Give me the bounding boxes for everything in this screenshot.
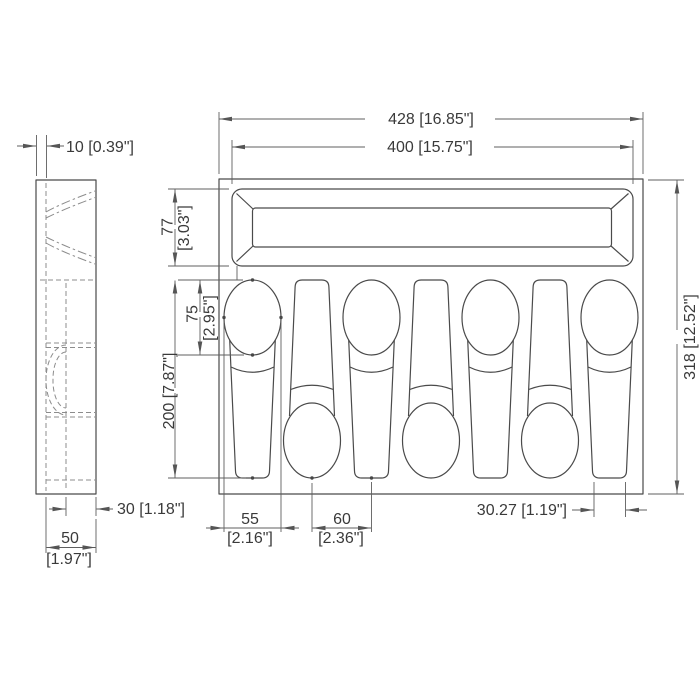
dim-label-overall-width: 428 [16.85"] xyxy=(388,111,474,128)
spoon-recess-4 xyxy=(403,280,460,478)
spoon-bowl xyxy=(403,403,460,478)
slot-profile-arc xyxy=(46,243,95,264)
dim-point xyxy=(251,278,254,281)
slot-corner-chamfer xyxy=(611,194,629,210)
spoon-neck-line xyxy=(231,367,274,372)
dim-label-handle-end-width: 30.27 [1.19"] xyxy=(477,502,567,519)
spoon-bowl xyxy=(284,403,341,478)
knife-slot xyxy=(232,189,633,266)
dim-label-side-width-mm: 50 xyxy=(61,530,79,547)
dim-label-spoon-pitch-inch: [2.36"] xyxy=(318,530,364,547)
dim-point xyxy=(251,353,254,356)
slot-profile-arc xyxy=(46,191,95,212)
dim-point xyxy=(279,316,282,319)
spoon-recess-6 xyxy=(522,280,579,478)
spoon-handle xyxy=(587,340,633,478)
dim-slot-height: 77 [3.03"] xyxy=(160,189,238,280)
side-view xyxy=(36,180,96,494)
dim-label-bowl-length-inch: [2.95"] xyxy=(202,295,219,341)
hidden-knife-slot-profile xyxy=(46,191,95,264)
dim-side-width: 50 [1.97"] xyxy=(46,497,96,568)
dim-point xyxy=(251,476,254,479)
hidden-bowl-profile-inner xyxy=(53,352,66,408)
slot-corner-chamfer xyxy=(237,194,254,210)
spoon-neck-line xyxy=(291,385,334,389)
dim-point xyxy=(370,476,373,479)
spoon-neck-line xyxy=(469,367,512,372)
spoon-neck-line xyxy=(588,367,631,372)
dim-label-slot-height-inch: [3.03"] xyxy=(176,205,193,251)
dim-label-recess-length: 200 [7.87"] xyxy=(161,353,178,430)
slot-corner-chamfer xyxy=(611,246,629,262)
main-view xyxy=(219,179,643,494)
spoon-neck-line xyxy=(410,385,453,389)
technical-drawing: 428 [16.85"] 400 [15.75"] 10 [0.39"] 77 … xyxy=(0,0,700,700)
spoon-bowl xyxy=(224,280,281,355)
spoon-bowl xyxy=(462,280,519,355)
dim-label-recess-depth: 30 [1.18"] xyxy=(117,501,185,518)
spoon-neck-line xyxy=(350,367,393,372)
spoon-bowl xyxy=(581,280,638,355)
spoon-recess-2 xyxy=(284,280,341,478)
knife-slot-floor xyxy=(253,208,612,247)
spoon-recess-7 xyxy=(581,280,638,478)
dim-point xyxy=(310,476,313,479)
dim-point xyxy=(222,316,225,319)
dim-wall-thickness: 10 [0.39"] xyxy=(17,135,134,178)
spoon-handle xyxy=(468,340,514,478)
spoon-bowl xyxy=(343,280,400,355)
spoon-neck-line xyxy=(529,385,572,389)
knife-slot-rim xyxy=(232,189,633,266)
dim-label-wall-thickness: 10 [0.39"] xyxy=(66,139,134,156)
spoon-recess-5 xyxy=(462,280,519,478)
dim-recess-depth: 30 [1.18"] xyxy=(49,497,185,518)
dim-slot-width: 400 [15.75"] xyxy=(232,139,633,184)
spoon-handle xyxy=(528,280,573,416)
spoon-bowl xyxy=(522,403,579,478)
hidden-bowl-profile-outer xyxy=(46,345,66,415)
spoon-recess-3 xyxy=(343,280,400,478)
dim-label-bowl-width-inch: [2.16"] xyxy=(227,530,273,547)
dim-label-slot-width: 400 [15.75"] xyxy=(387,139,473,156)
slot-corner-chamfer xyxy=(237,246,254,262)
dim-label-bowl-width-mm: 55 xyxy=(241,511,259,528)
dim-label-spoon-pitch-mm: 60 xyxy=(333,511,351,528)
spoon-handle xyxy=(349,340,395,478)
dim-label-overall-height: 318 [12.52"] xyxy=(682,294,699,380)
spoon-recess-1 xyxy=(224,280,281,478)
spoon-handle xyxy=(290,280,335,416)
spoon-handle xyxy=(230,340,276,478)
dim-spoon-pitch: 60 [2.36"] xyxy=(312,482,372,547)
dim-label-side-width-inch: [1.97"] xyxy=(46,551,92,568)
dim-label-slot-height-mm: 77 xyxy=(160,218,177,236)
dim-handle-end-width: 30.27 [1.19"] xyxy=(477,482,647,519)
dim-label-bowl-length-mm: 75 xyxy=(185,305,202,323)
dim-overall-height: 318 [12.52"] xyxy=(648,180,699,494)
spoon-handle xyxy=(409,280,454,416)
